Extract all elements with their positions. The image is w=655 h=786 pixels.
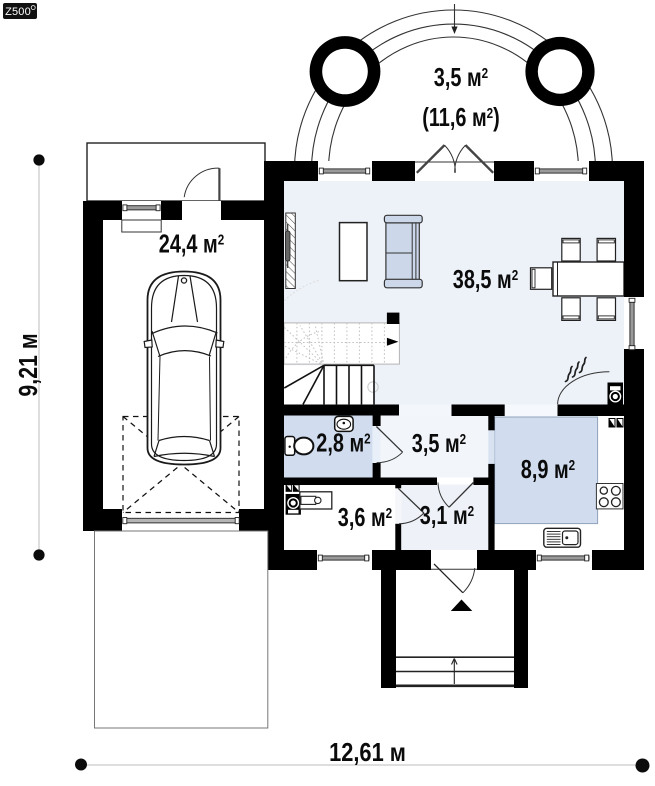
svg-text:3,1 м2: 3,1 м2 [420,501,474,530]
svg-text:3,5 м2: 3,5 м2 [412,429,466,458]
svg-text:8,9 м2: 8,9 м2 [521,455,575,484]
svg-text:38,5 м2: 38,5 м2 [453,265,518,294]
svg-text:24,4 м2: 24,4 м2 [159,229,224,258]
svg-text:2,8 м2: 2,8 м2 [316,428,370,457]
svg-text:3,5 м2: 3,5 м2 [434,63,488,92]
svg-text:12,61 м: 12,61 м [329,738,406,767]
svg-text:9,21 м: 9,21 м [14,333,44,396]
svg-text:3,6 м2: 3,6 м2 [338,503,392,532]
svg-text:Z500: Z500 [5,6,31,18]
